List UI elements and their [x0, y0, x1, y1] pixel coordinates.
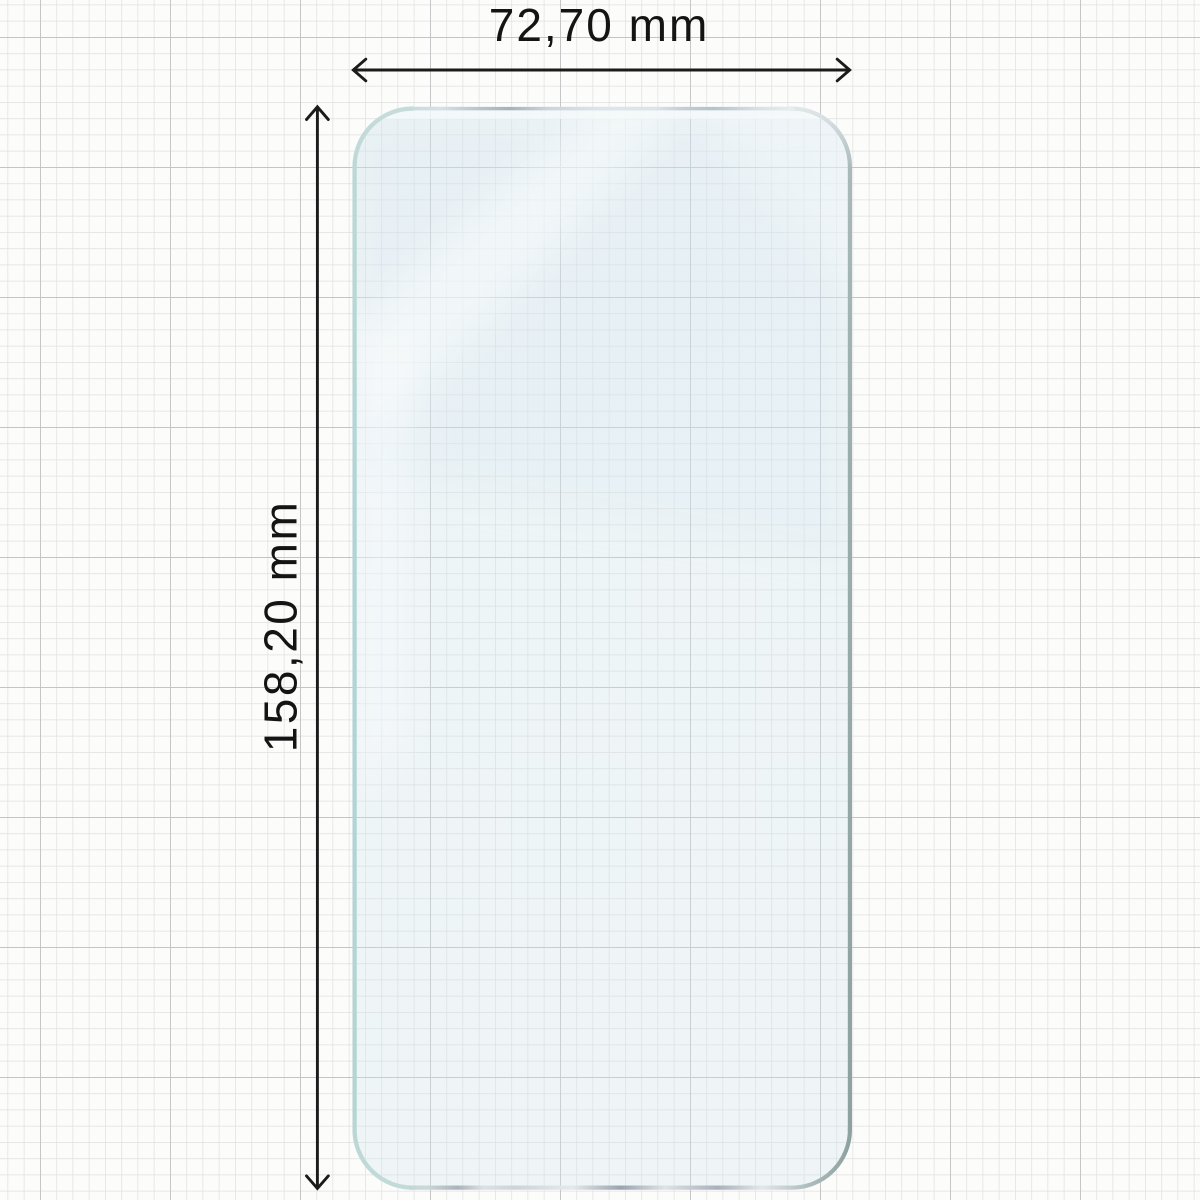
svg-text:158,20 mm: 158,20 mm [255, 500, 307, 753]
svg-text:72,70 mm: 72,70 mm [489, 0, 710, 51]
